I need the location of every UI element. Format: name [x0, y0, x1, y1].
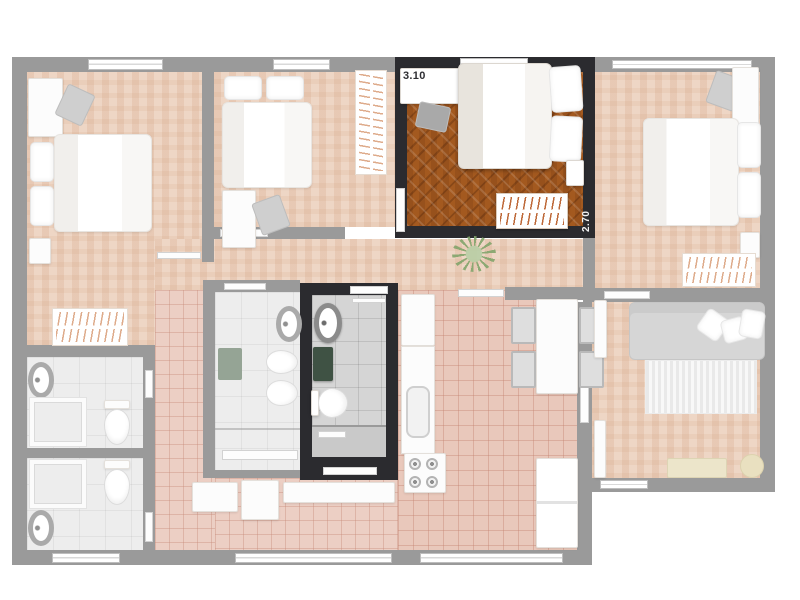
pillow — [548, 65, 583, 113]
door-bedroom-highlighted[interactable] — [396, 188, 405, 232]
wall-bathroom-center-left — [203, 280, 215, 478]
door-bedroom-left[interactable] — [157, 252, 201, 259]
wall-bedroom-left-right — [202, 72, 214, 262]
desk — [732, 67, 759, 125]
door-bathroom-left-bottom[interactable] — [145, 512, 153, 542]
window-laundry — [235, 553, 392, 563]
bath-mat — [218, 348, 242, 380]
refrigerator — [536, 458, 578, 548]
door-bathroom-left-top[interactable] — [145, 370, 153, 398]
window-living — [600, 480, 648, 489]
clothes-rack — [496, 193, 568, 229]
plant — [452, 236, 496, 272]
dining-chair — [511, 307, 536, 344]
wall-top-left — [12, 57, 395, 72]
towel-bar — [352, 298, 386, 303]
window-bathroom-bottom — [52, 553, 120, 563]
rug — [645, 360, 757, 414]
round-sink — [314, 303, 342, 343]
wall-right — [760, 57, 775, 492]
washing-machine — [241, 480, 279, 520]
floor-plan: 3.10 2.70 — [0, 0, 800, 600]
laundry-counter — [283, 482, 395, 503]
door-bathroom-highlighted[interactable] — [350, 286, 388, 294]
wall-bathrooms-left-divider — [27, 448, 143, 458]
pillow — [266, 76, 304, 100]
door-bathroom-center[interactable] — [224, 283, 266, 290]
door-living[interactable] — [604, 291, 650, 299]
pillow — [737, 122, 761, 168]
dimension-width-label: 3.10 — [403, 70, 426, 82]
pillow — [30, 186, 54, 226]
shower-glass — [312, 425, 386, 427]
shower-door-bathroom-highlighted[interactable] — [323, 467, 377, 475]
window-bedroom-right — [612, 60, 752, 69]
dining-chair — [511, 351, 536, 388]
bed — [222, 102, 312, 188]
bath-mat — [313, 347, 333, 381]
wall-left — [12, 57, 27, 565]
shelf — [594, 300, 607, 358]
pillow — [30, 142, 54, 182]
bed — [458, 63, 552, 169]
stove-burner — [426, 458, 438, 470]
tv-stand — [667, 458, 727, 478]
round-sink — [28, 510, 54, 546]
shelf — [594, 420, 606, 478]
nightstand — [566, 160, 584, 186]
dimension-depth-label: 2.70 — [581, 186, 592, 232]
stove-burner — [426, 476, 438, 488]
wall-bedroom-left-bottom — [12, 345, 155, 357]
toilet-tank — [104, 400, 130, 409]
shower-glass — [215, 428, 300, 430]
nightstand — [29, 238, 51, 264]
door-kitchen[interactable] — [458, 289, 504, 297]
clothes-rack — [52, 308, 128, 346]
pillow — [549, 115, 583, 163]
bathtub-edge — [222, 450, 298, 460]
pillow — [224, 76, 262, 100]
window-kitchen — [420, 553, 563, 563]
toilet-tank — [104, 460, 130, 469]
shower — [30, 398, 86, 446]
wall-bathroom-center-bottom — [203, 470, 300, 478]
window-bedroom-left — [88, 59, 163, 70]
stove-burner — [409, 476, 421, 488]
stove-burner — [409, 458, 421, 470]
bed — [54, 134, 152, 232]
shower — [30, 460, 86, 508]
dining-table — [536, 299, 578, 394]
kitchen-sink — [406, 386, 430, 438]
desk — [222, 190, 256, 248]
round-sink — [28, 362, 54, 398]
sofa-pillow — [738, 308, 766, 340]
wall-kitchen-right-low — [577, 490, 592, 565]
bed — [643, 118, 739, 226]
wardrobe — [355, 70, 387, 175]
laundry-tub — [192, 482, 238, 512]
pillow — [737, 172, 761, 218]
window-bedroom-center — [273, 59, 330, 70]
shower-faucet — [318, 431, 346, 438]
clothes-rack — [682, 253, 756, 287]
round-sink — [276, 306, 302, 342]
kitchen-cabinet — [401, 294, 435, 346]
pouf — [740, 454, 764, 478]
